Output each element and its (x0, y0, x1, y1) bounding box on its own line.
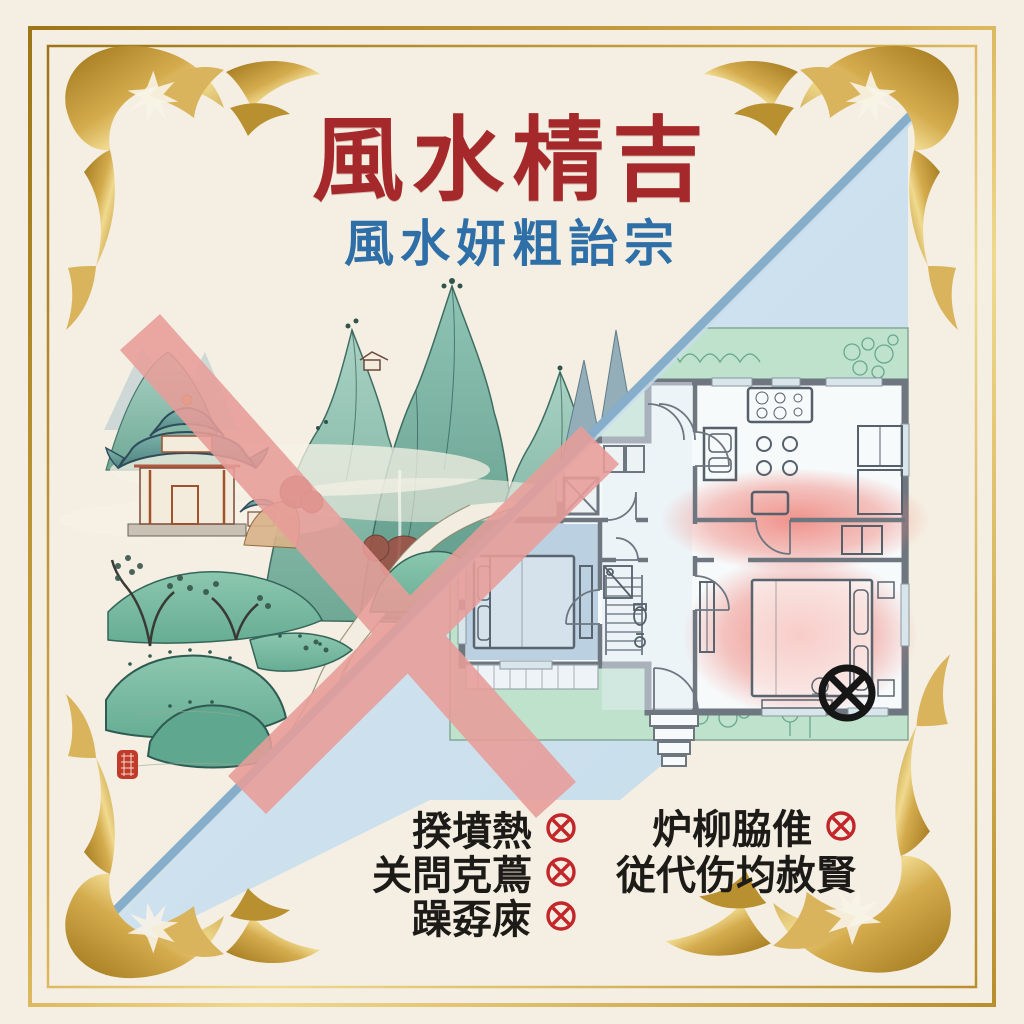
painter-seal (117, 750, 138, 779)
checklist-item-text: 躁孬庲 (412, 887, 532, 945)
checklist-item: 躁孬庲 (412, 894, 578, 938)
crossed-circle-icon (544, 855, 578, 889)
checklist-item-text: 従代伤均赦賢 (616, 843, 856, 901)
feng-shui-poster: 風水棈吉 風水妍粗詒宗 揆墳熱 关問克蔦 躁孬庲 炉柳脇倠 従代伤均赦賢 (0, 0, 1024, 1024)
checklist-item: 従代伤均赦賢 (616, 850, 856, 894)
poster-title: 風水棈吉 (0, 86, 1024, 219)
crossed-circle-icon (544, 811, 578, 845)
poster-subtitle: 風水妍粗詒宗 (0, 204, 1024, 276)
crossed-circle-icon (824, 809, 858, 843)
checklist-item: 炉柳脇倠 (652, 804, 858, 848)
crossed-circle-icon (544, 899, 578, 933)
